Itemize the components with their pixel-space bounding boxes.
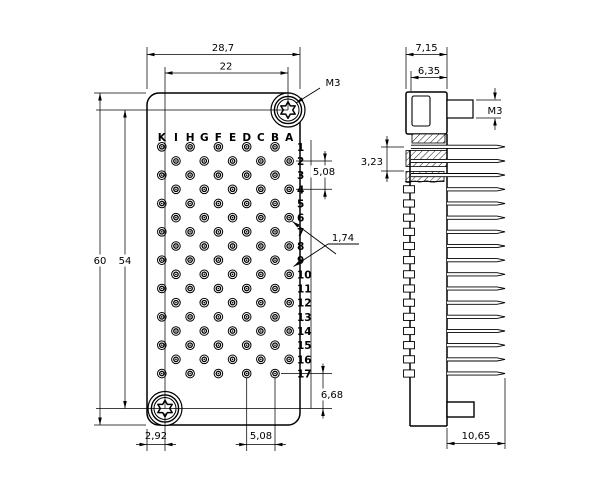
pin [271,341,280,350]
pin-side [447,329,505,332]
column-label: E [229,132,236,144]
column-label: H [186,132,195,144]
pin [257,298,266,307]
pin [271,256,280,265]
pin-tail-notch [404,356,415,363]
dimension-text: 10,65 [462,431,491,442]
pin [257,270,266,279]
front-view: KIHGFEDCBA123456789101112131415161728,72… [92,43,359,451]
pin [200,355,209,364]
dimension-text: 5,08 [250,431,272,442]
pin [271,199,280,208]
pin [200,157,209,166]
column-label: K [158,132,167,144]
pin [242,228,251,237]
row-labels: 1234567891011121314151617 [297,142,312,381]
row-label: 14 [297,326,312,338]
pin-side [447,216,505,219]
technical-drawing: KIHGFEDCBA123456789101112131415161728,72… [0,0,604,489]
screw-head-side [412,96,430,126]
dimension-text: 2,92 [145,431,167,442]
pin [186,341,195,350]
pin [285,298,294,307]
pin [186,313,195,322]
pin-side [411,174,505,177]
side-view: 7,156,35M33,2310,65 [361,43,505,449]
dimension-text: 22 [220,62,233,73]
row-label: 15 [297,340,312,352]
pin [172,327,181,336]
row-label: 12 [297,298,312,310]
dimension-text: 60 [94,256,107,267]
pin [200,213,209,222]
pin [172,298,181,307]
row-label: 5 [297,198,304,210]
pin-side [447,372,505,375]
pin-tail-notch [404,370,415,377]
column-label: C [257,132,265,144]
pin [242,369,251,378]
pin [285,270,294,279]
row-label: 9 [297,255,304,267]
pin-tail-notch [404,271,415,278]
pin [200,298,209,307]
dim-stud-thread: M3 [476,88,503,130]
pin-tail-notch [404,257,415,264]
pin-side [447,287,505,290]
m3-stud [447,100,473,118]
pin-tail-notch [404,313,415,320]
pin [271,171,280,180]
pin [285,185,294,194]
pin [257,242,266,251]
pin [271,313,280,322]
pin-side [447,358,505,361]
pin-side [447,273,505,276]
column-label: I [174,132,178,144]
pin-tail-notch [404,299,415,306]
dimension-text: 7,15 [415,43,437,54]
pin-side [447,301,505,304]
dim-screw-spacing-h: 22 [165,62,288,75]
pin [214,313,223,322]
pin [186,171,195,180]
dimension-text: 6,68 [321,390,343,401]
pin [285,213,294,222]
pin [271,228,280,237]
pin-side [447,315,505,318]
row-label: 6 [297,213,304,225]
pin [214,284,223,293]
row-label: 3 [297,170,304,182]
row-label: 8 [297,241,304,253]
pin [186,284,195,293]
pin [271,369,280,378]
pin [228,298,237,307]
pin [285,327,294,336]
dimension-text: 1,74 [332,233,354,244]
row-label: 17 [297,369,312,381]
row-label: 16 [297,354,312,366]
pin [242,171,251,180]
pin [214,171,223,180]
pin-tail-notch [404,242,415,249]
row-label: 1 [297,142,304,154]
row-label: 10 [297,269,312,281]
pin [242,256,251,265]
pin [228,213,237,222]
pin-side [447,259,505,262]
dimension-text: 54 [119,256,132,267]
pin-tail-notch [404,285,415,292]
pin-tail-notch [404,214,415,221]
pin [257,327,266,336]
pin [257,185,266,194]
row-label: 4 [297,184,304,196]
pin-side [447,244,505,247]
pin [228,270,237,279]
pin-side [447,188,505,191]
column-label: G [200,132,209,144]
pin [257,355,266,364]
pin [285,157,294,166]
pin-side [447,230,505,233]
pin [257,213,266,222]
dimension-text: 6,35 [418,66,440,77]
pin [172,185,181,194]
pin [214,199,223,208]
pin [186,256,195,265]
pin-tail-notch [404,342,415,349]
technical-drawing-page: KIHGFEDCBA123456789101112131415161728,72… [0,0,604,489]
dimension-text: 5,08 [313,167,335,178]
pin [200,270,209,279]
column-label: D [242,132,251,144]
pin-side [411,159,505,162]
dimension-text: 3,23 [361,157,383,168]
pin [228,157,237,166]
row-label: 7 [297,227,304,239]
pin [257,157,266,166]
pin [242,199,251,208]
pin [285,242,294,251]
pin [214,341,223,350]
pin [172,157,181,166]
pin [214,256,223,265]
pin [228,242,237,251]
pin [186,199,195,208]
column-label: F [215,132,222,144]
pin [172,213,181,222]
column-label: A [285,132,294,144]
pin [200,185,209,194]
row-label: 13 [297,312,312,324]
dim-screw-spacing-v: 54 [117,110,132,409]
dim-row-offset: 3,23 [361,136,404,182]
row-label: 2 [297,156,304,168]
dimension-text: M3 [488,106,503,117]
pin [214,369,223,378]
pin-tail-notch [404,200,415,207]
pin [228,355,237,364]
pin-side [447,202,505,205]
pin-side [447,344,505,347]
pin [242,284,251,293]
pin [242,313,251,322]
pin [172,355,181,364]
pin [172,242,181,251]
pin [285,355,294,364]
pin-tail-notch [404,186,415,193]
row-label: 11 [297,284,312,296]
pin-side [411,145,505,148]
dim-body-depth: 6,35 [411,66,447,91]
dim-screw-thread-front: M3 [296,78,341,103]
pin [172,270,181,279]
dimension-text: 28,7 [212,43,234,54]
pin [200,327,209,336]
pin-tail-notch [404,228,415,235]
pin [186,228,195,237]
pin [200,242,209,251]
dimension-text: M3 [326,78,341,89]
pin [214,228,223,237]
pin [186,369,195,378]
mounting-peg [447,402,474,417]
pin-tail-notch [404,327,415,334]
column-label: B [271,132,279,144]
pin [228,327,237,336]
pin [242,341,251,350]
pin [228,185,237,194]
pin [271,284,280,293]
